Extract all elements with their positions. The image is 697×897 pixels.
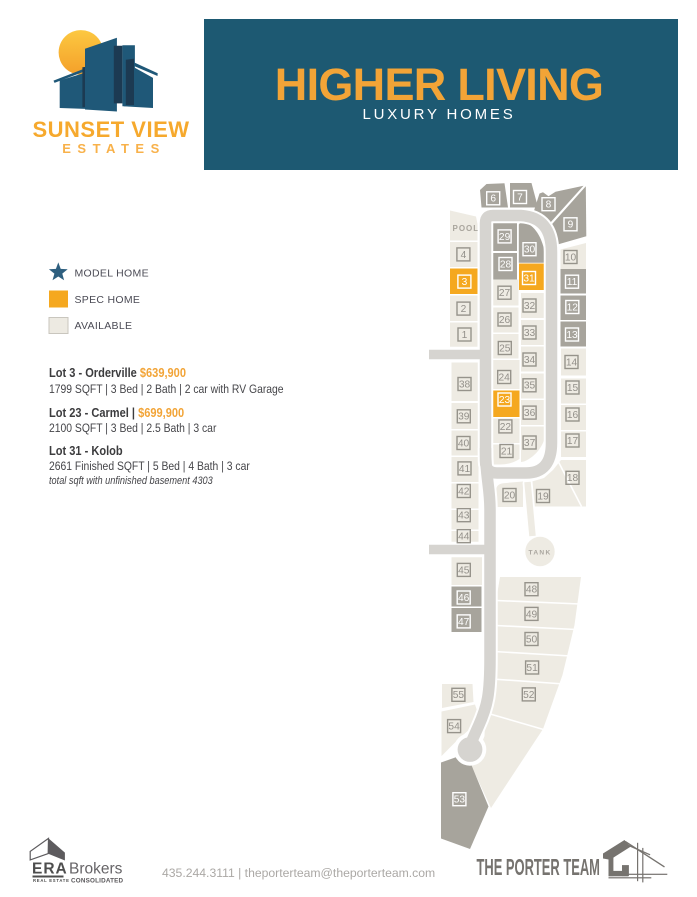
svg-text:Brokers: Brokers: [69, 861, 123, 878]
svg-text:51: 51: [526, 663, 538, 674]
svg-text:10: 10: [565, 252, 577, 263]
svg-text:45: 45: [458, 565, 470, 576]
svg-text:19: 19: [537, 491, 549, 502]
svg-text:14: 14: [566, 357, 578, 368]
svg-text:36: 36: [524, 408, 536, 419]
svg-text:49: 49: [526, 609, 538, 620]
svg-text:8: 8: [546, 200, 552, 211]
svg-text:THE PORTER TEAM: THE PORTER TEAM: [477, 855, 600, 881]
svg-text:44: 44: [458, 532, 470, 543]
svg-text:1: 1: [462, 330, 468, 341]
svg-text:ERA: ERA: [32, 861, 68, 878]
svg-text:20: 20: [504, 490, 516, 501]
svg-text:7: 7: [517, 192, 523, 203]
svg-text:31: 31: [523, 273, 535, 284]
svg-text:3: 3: [462, 277, 468, 288]
svg-text:42: 42: [458, 486, 470, 497]
svg-text:21: 21: [501, 446, 513, 457]
svg-text:26: 26: [499, 315, 511, 326]
svg-text:24: 24: [499, 372, 511, 383]
svg-text:34: 34: [524, 355, 536, 366]
svg-text:CONSOLIDATED: CONSOLIDATED: [71, 878, 124, 885]
svg-text:33: 33: [524, 328, 536, 339]
svg-text:REAL ESTATE: REAL ESTATE: [33, 878, 70, 883]
svg-text:16: 16: [567, 410, 579, 421]
svg-text:TANK: TANK: [528, 550, 551, 557]
svg-text:17: 17: [567, 436, 579, 447]
svg-text:2: 2: [461, 304, 467, 315]
svg-text:POOL: POOL: [453, 224, 480, 233]
svg-text:28: 28: [500, 259, 512, 270]
svg-text:29: 29: [499, 232, 511, 243]
svg-text:35: 35: [524, 381, 536, 392]
svg-text:41: 41: [459, 464, 471, 475]
svg-text:4: 4: [461, 250, 467, 261]
svg-text:15: 15: [567, 383, 579, 394]
svg-text:38: 38: [459, 379, 471, 390]
svg-text:27: 27: [499, 288, 511, 299]
svg-text:55: 55: [453, 690, 465, 701]
svg-text:23: 23: [499, 395, 511, 406]
svg-text:50: 50: [526, 634, 538, 645]
svg-text:22: 22: [500, 422, 512, 433]
svg-text:30: 30: [524, 245, 536, 256]
svg-text:9: 9: [568, 220, 574, 231]
svg-text:48: 48: [526, 585, 538, 596]
svg-text:18: 18: [567, 473, 579, 484]
svg-text:47: 47: [458, 617, 470, 628]
svg-text:6: 6: [490, 194, 496, 205]
svg-text:53: 53: [454, 795, 466, 806]
svg-text:13: 13: [566, 330, 578, 341]
svg-text:40: 40: [458, 438, 470, 449]
svg-text:46: 46: [458, 593, 470, 604]
svg-text:43: 43: [458, 511, 470, 522]
svg-text:11: 11: [567, 277, 578, 288]
svg-text:39: 39: [458, 412, 470, 423]
svg-text:12: 12: [567, 302, 579, 313]
svg-text:25: 25: [499, 343, 511, 354]
svg-text:37: 37: [524, 438, 536, 449]
svg-text:32: 32: [524, 301, 536, 312]
svg-text:52: 52: [523, 690, 535, 701]
svg-text:54: 54: [448, 722, 460, 733]
